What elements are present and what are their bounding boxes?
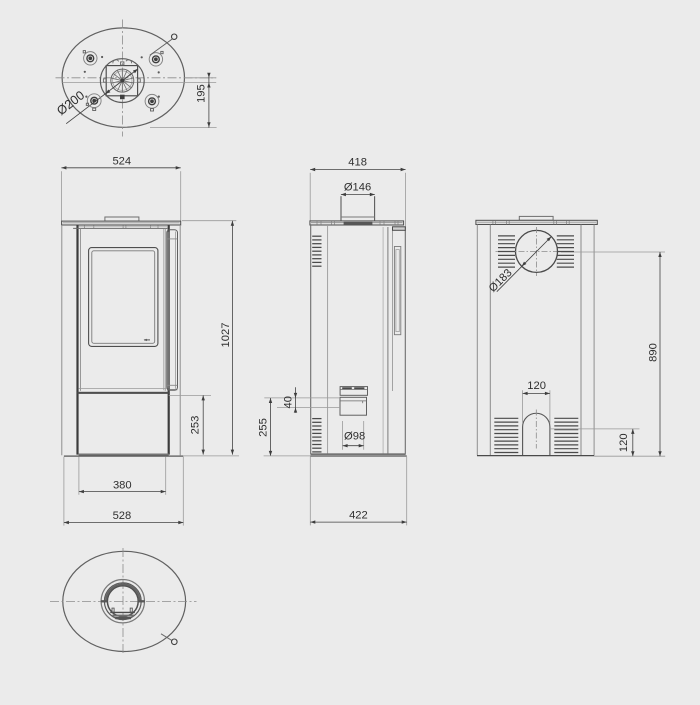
svg-text:Ø98: Ø98 bbox=[344, 431, 365, 443]
svg-text:380: 380 bbox=[113, 479, 132, 491]
svg-text:Ø146: Ø146 bbox=[344, 181, 371, 193]
svg-text:40: 40 bbox=[282, 396, 294, 408]
svg-text:890: 890 bbox=[648, 343, 660, 362]
svg-text:195: 195 bbox=[196, 84, 208, 103]
svg-text:120: 120 bbox=[618, 433, 630, 452]
svg-text:422: 422 bbox=[349, 510, 368, 522]
svg-text:524: 524 bbox=[112, 156, 131, 168]
svg-text:120: 120 bbox=[527, 380, 546, 392]
svg-text:253: 253 bbox=[190, 416, 202, 435]
svg-text:255: 255 bbox=[257, 418, 269, 437]
svg-text:528: 528 bbox=[113, 510, 132, 522]
svg-text:1027: 1027 bbox=[220, 323, 232, 348]
svg-text:418: 418 bbox=[348, 156, 367, 168]
